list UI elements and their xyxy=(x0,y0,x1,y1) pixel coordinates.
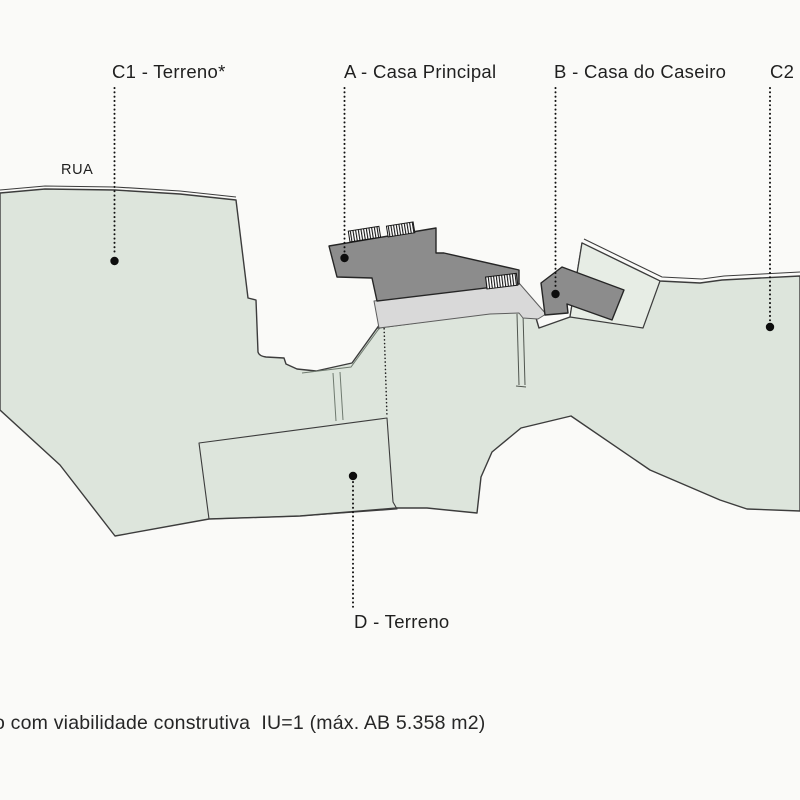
label-c1-terreno: C1 - Terreno* xyxy=(112,61,226,83)
site-plan: C1 - Terreno* A - Casa Principal B - Cas… xyxy=(0,0,800,800)
dot-b xyxy=(551,290,559,298)
dot-c1 xyxy=(110,257,118,265)
label-c2: C2 xyxy=(770,61,794,83)
site-plan-svg xyxy=(0,0,800,800)
note-text: o com viabilidade construtiva IU=1 (máx.… xyxy=(0,712,485,735)
dot-a xyxy=(340,254,348,262)
label-b-casa-do-caseiro: B - Casa do Caseiro xyxy=(554,61,726,83)
dot-c2 xyxy=(766,323,774,331)
dot-d xyxy=(349,472,357,480)
label-a-casa-principal: A - Casa Principal xyxy=(344,61,496,83)
street-label-rua: RUA xyxy=(61,162,93,178)
label-d-terreno: D - Terreno xyxy=(354,611,450,633)
